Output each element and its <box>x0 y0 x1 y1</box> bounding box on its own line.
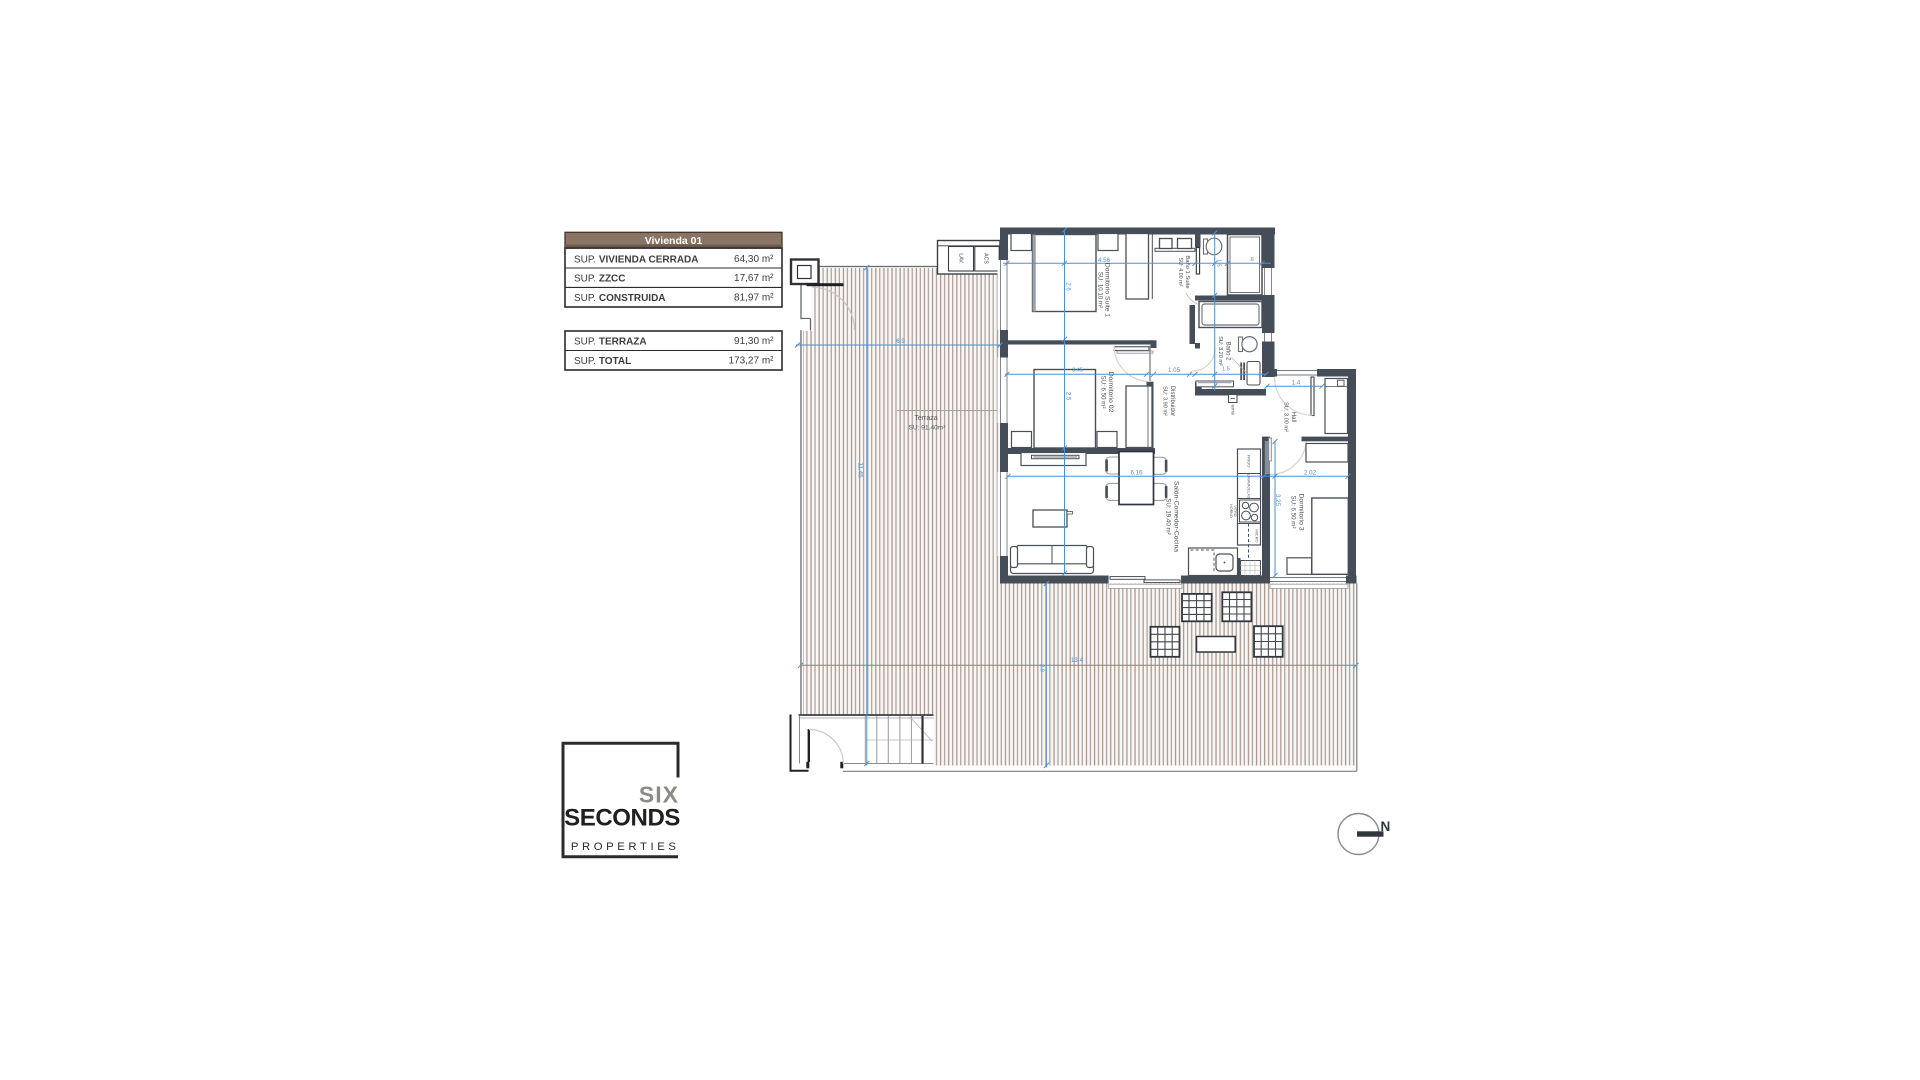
svg-text:SUP. TERRAZA: SUP. TERRAZA <box>574 337 647 348</box>
svg-text:6.16: 6.16 <box>1130 469 1143 476</box>
svg-text:termo: termo <box>1231 405 1236 416</box>
svg-text:LAV.: LAV. <box>958 253 964 263</box>
svg-text:2.02: 2.02 <box>1304 469 1317 476</box>
svg-text:17,67 m²: 17,67 m² <box>734 273 774 284</box>
svg-text:SUP. VIVIENDA CERRADA: SUP. VIVIENDA CERRADA <box>574 254 698 265</box>
svg-text:MICRO: MICRO <box>1255 529 1260 542</box>
svg-text:HORNO: HORNO <box>1229 504 1233 518</box>
svg-text:SECONDS: SECONDS <box>564 805 680 832</box>
svg-text:SU: 6.50 m²: SU: 6.50 m² <box>1100 375 1107 408</box>
svg-text:LAVAVAJILLAS: LAVAVAJILLAS <box>1247 474 1251 499</box>
svg-text:1.05: 1.05 <box>1168 367 1181 374</box>
svg-text:Baño 2: Baño 2 <box>1225 341 1231 361</box>
svg-text:1.5: 1.5 <box>1222 367 1230 373</box>
svg-text:Hall: Hall <box>1290 412 1296 422</box>
svg-text:81,97 m²: 81,97 m² <box>734 293 774 304</box>
svg-text:Baño 1 Suite: Baño 1 Suite <box>1184 255 1190 288</box>
svg-text:3.25: 3.25 <box>1274 494 1281 507</box>
svg-text:Dormitorio Suite 1: Dormitorio Suite 1 <box>1104 263 1111 318</box>
svg-text:SUP. CONSTRUIDA: SUP. CONSTRUIDA <box>574 293 666 304</box>
svg-text:SU: 10.10 m²: SU: 10.10 m² <box>1097 272 1104 308</box>
svg-text:SU: 4.00 m²: SU: 4.00 m² <box>1177 258 1183 287</box>
svg-text:ACS: ACS <box>983 253 989 264</box>
svg-text:PROPERTIES: PROPERTIES <box>571 841 680 853</box>
svg-text:91,30 m²: 91,30 m² <box>734 336 774 347</box>
svg-text:SU: 91.40m²: SU: 91.40m² <box>908 425 946 432</box>
svg-text:6.9: 6.9 <box>896 338 905 345</box>
svg-text:SU: 3.90 m²: SU: 3.90 m² <box>1162 386 1168 416</box>
svg-text:FRIGO: FRIGO <box>1247 455 1252 468</box>
svg-text:SU: 3.00 m²: SU: 3.00 m² <box>1283 402 1289 432</box>
svg-text:2.9: 2.9 <box>1039 664 1045 672</box>
svg-text:N: N <box>1381 819 1391 834</box>
svg-text:Salón-Comedor-Cocina: Salón-Comedor-Cocina <box>1173 481 1180 552</box>
svg-text:SUP. ZZCC: SUP. ZZCC <box>574 274 626 285</box>
svg-text:13.4: 13.4 <box>1071 657 1084 664</box>
svg-text:1.5: 1.5 <box>1216 259 1222 267</box>
svg-text:Vivienda 01: Vivienda 01 <box>645 235 703 247</box>
svg-text:SUP. TOTAL: SUP. TOTAL <box>574 356 631 367</box>
svg-text:64,30 m²: 64,30 m² <box>734 254 774 265</box>
svg-text:173,27 m²: 173,27 m² <box>728 356 774 367</box>
svg-text:SU: 19.40 m²: SU: 19.40 m² <box>1165 498 1172 534</box>
svg-text:Distribuidor: Distribuidor <box>1169 386 1175 416</box>
svg-text:Terraza: Terraza <box>914 415 937 422</box>
svg-text:SU: 3.20 m²: SU: 3.20 m² <box>1217 336 1223 366</box>
svg-text:SU: 6.50 m²: SU: 6.50 m² <box>1290 495 1297 528</box>
svg-text:Dormitorio 02: Dormitorio 02 <box>1107 372 1114 413</box>
svg-text:11.45: 11.45 <box>857 462 864 478</box>
svg-text:3.45: 3.45 <box>1072 368 1083 374</box>
svg-text:2.6: 2.6 <box>1065 282 1072 291</box>
svg-text:Dormitorio 3: Dormitorio 3 <box>1298 493 1305 530</box>
svg-text:.6: .6 <box>1249 257 1254 263</box>
svg-text:2.5: 2.5 <box>1065 392 1072 401</box>
svg-text:1.4: 1.4 <box>1292 379 1301 386</box>
